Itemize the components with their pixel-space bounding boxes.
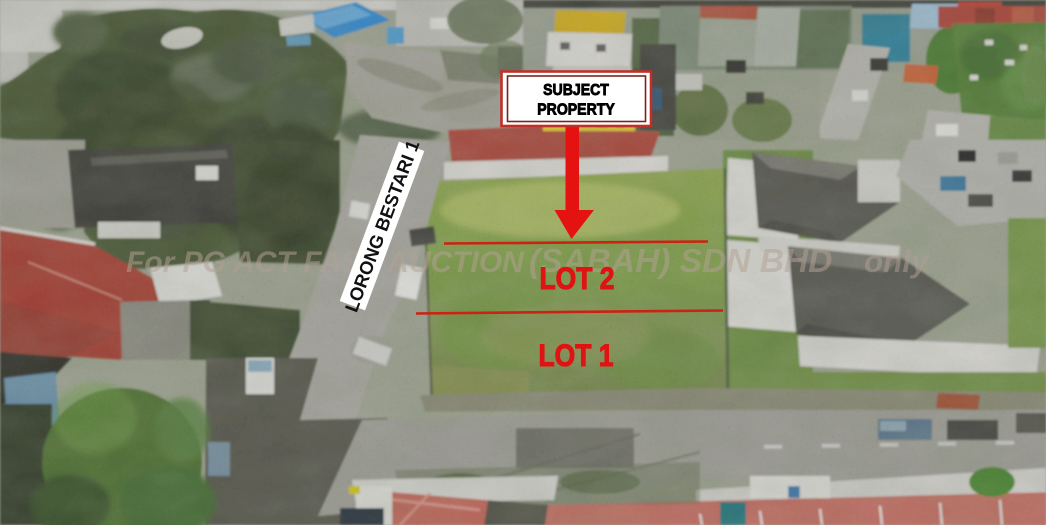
- svg-text:only: only: [864, 244, 930, 279]
- svg-text:LOT 1: LOT 1: [539, 339, 614, 374]
- svg-text:LORONG BESTARI 1: LORONG BESTARI 1: [341, 137, 424, 315]
- svg-text:LOT 2: LOT 2: [540, 262, 615, 297]
- svg-text:For PG ACT FAST AUCTION: For PG ACT FAST AUCTION: [126, 246, 525, 279]
- svg-text:SUBJECT: SUBJECT: [543, 81, 609, 99]
- svg-text:PROPERTY: PROPERTY: [537, 101, 614, 119]
